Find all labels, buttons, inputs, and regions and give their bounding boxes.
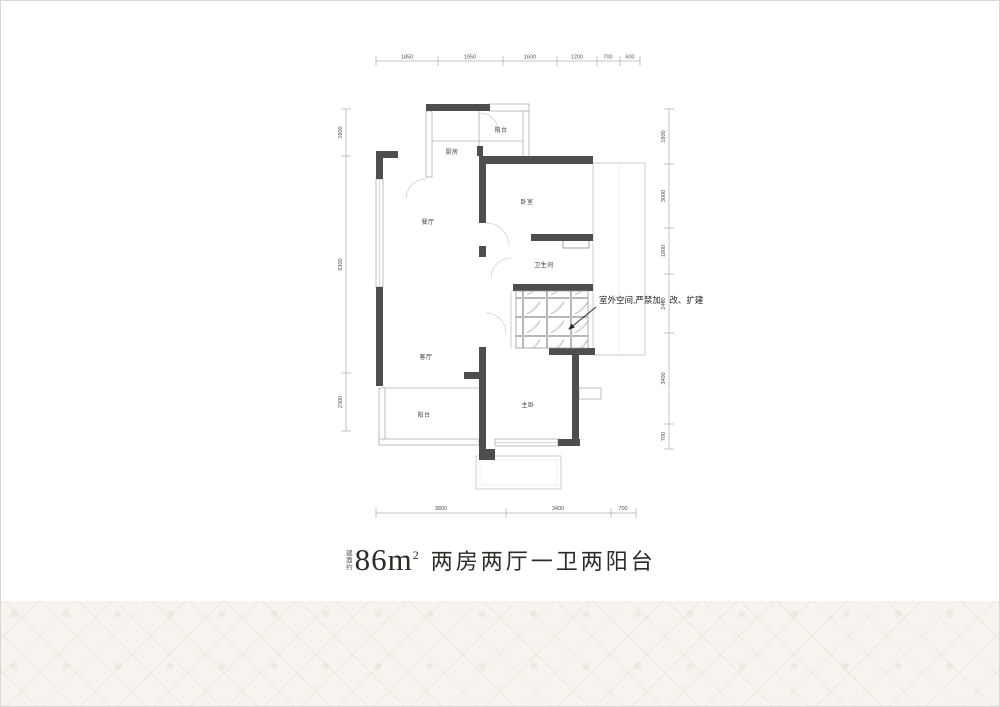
room-label-balcony-top: 阳台 xyxy=(494,126,507,134)
area-sup: 2 xyxy=(413,548,419,563)
room-label-dining: 餐厅 xyxy=(421,218,434,226)
room-label-master: 主卧 xyxy=(521,401,534,409)
floorplan-drawing: 厨房 阳台 餐厅 卧室 卫生间 客厅 阳台 主卧 室外空间,严禁加、改、扩建 xyxy=(331,51,791,536)
floorplan-page: 厨房 阳台 餐厅 卧室 卫生间 客厅 阳台 主卧 室外空间,严禁加、改、扩建 xyxy=(0,0,1000,707)
area-prefix-char: 约 xyxy=(346,564,353,571)
outdoor-grid xyxy=(516,291,588,348)
area-value: 86m xyxy=(355,544,413,575)
dim-right-4: 2400 xyxy=(661,297,667,309)
area-title: 建 面 约 86m 2 两房两厅一卫两阳台 xyxy=(1,542,1000,575)
dimension-lines xyxy=(341,56,674,518)
dim-bottom-2: 3400 xyxy=(552,506,564,512)
outdoor-annotation-text: 室外空间,严禁加、改、扩建 xyxy=(599,295,704,305)
area-description: 两房两厅一卫两阳台 xyxy=(431,549,656,575)
room-label-kitchen: 厨房 xyxy=(445,148,458,156)
room-label-bathroom: 卫生间 xyxy=(534,261,554,269)
dim-left-2: 6300 xyxy=(338,258,344,270)
area-prefix: 建 面 约 xyxy=(346,550,353,575)
dim-top-2: 1950 xyxy=(464,55,476,61)
footer-band: 10 栋 HOUSE TYPE 户型 03/04 5-31楼奇数层 ❖本资料所示… xyxy=(1,601,1000,707)
dim-top-3: 1600 xyxy=(524,55,536,61)
room-label-balcony-bottom: 阳台 xyxy=(417,411,430,419)
dim-right-5: 3400 xyxy=(661,372,667,384)
dim-right-6: 700 xyxy=(661,432,667,441)
dim-left-3: 2300 xyxy=(338,396,344,408)
dim-bottom-1: 3800 xyxy=(435,506,447,512)
dim-right-3: 1800 xyxy=(661,245,667,257)
dim-top-4: 1200 xyxy=(571,55,583,61)
outdoor-annotation: 室外空间,严禁加、改、扩建 xyxy=(569,295,704,329)
dim-right-1: 1800 xyxy=(661,130,667,142)
walls-dark xyxy=(376,104,595,460)
dim-top-5: 700 xyxy=(603,55,612,61)
room-label-bedroom: 卧室 xyxy=(520,198,533,206)
dim-right-2: 3000 xyxy=(661,190,667,202)
room-label-living: 客厅 xyxy=(419,353,432,361)
dim-bottom-3: 700 xyxy=(618,506,627,512)
dim-top-1: 1850 xyxy=(401,55,413,61)
dim-top-6: 600 xyxy=(625,55,634,61)
dim-left-1: 1800 xyxy=(338,126,344,138)
